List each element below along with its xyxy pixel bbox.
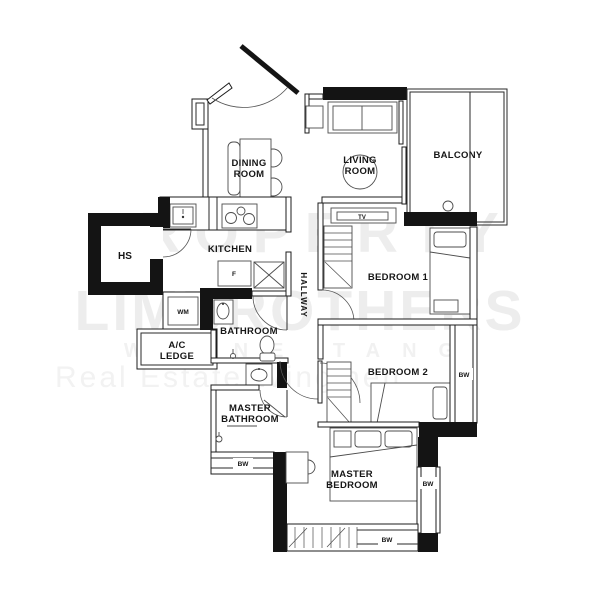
- living-room-zone: LIVING ROOM: [305, 87, 407, 204]
- suite-lobby-zone: [246, 361, 318, 399]
- bathroom-left-wall: [211, 330, 216, 358]
- bathroom-bottom-wall: [211, 358, 288, 363]
- bw-label-master-bottom: BW: [382, 537, 394, 544]
- balcony-slider-panel: [399, 101, 403, 144]
- room-label-dining-line2: ROOM: [234, 169, 265, 180]
- room-label-bedroom1: BEDROOM 1: [368, 272, 429, 283]
- room-label-living-line2: ROOM: [345, 166, 376, 177]
- bedroom2-door-panel: [318, 361, 322, 403]
- hs-door-swing-arc: [163, 229, 191, 257]
- master-pillow: [355, 431, 381, 447]
- room-label-master-bedroom-line2: BEDROOM: [326, 480, 378, 491]
- bedroom1-window-wall: [470, 227, 477, 320]
- bathroom-zone: BATHROOM: [200, 288, 288, 363]
- master-bathroom-left-wall: [211, 390, 216, 453]
- master-vanity-icon: [286, 452, 308, 483]
- bedroom2-zone: BW BEDROOM 2: [327, 325, 477, 424]
- master-bedroom-zone: MASTER BEDROOM BW BW: [286, 422, 477, 552]
- entry-jamb-wall: [207, 83, 232, 104]
- bathroom-top-wall-solid: [200, 288, 252, 299]
- fridge-label: F: [232, 271, 236, 278]
- floorplan-canvas: PROPERTY LIMBROTHERS WAYNE TANG Real Est…: [0, 0, 600, 600]
- room-label-hs: HS: [118, 251, 132, 262]
- room-label-master-bathroom-line1: MASTER: [229, 403, 271, 414]
- master-right-wall-solid: [418, 437, 438, 467]
- bathroom-top-wall: [252, 291, 286, 296]
- bedroom1-bench: [434, 300, 458, 312]
- sofa-icon: [328, 102, 397, 133]
- hallway-right-wall-mid: [318, 325, 323, 359]
- room-label-hallway: HALLWAY: [299, 272, 308, 317]
- dining-left-wall: [203, 129, 208, 198]
- lobby-sink-icon: [246, 364, 272, 385]
- living-bottom-wall: [322, 197, 404, 203]
- master-left-wall-solid: [273, 452, 287, 552]
- room-label-ac-line2: LEDGE: [160, 351, 194, 362]
- room-label-living-line1: LIVING: [343, 155, 376, 166]
- hs-door-opening: [150, 227, 163, 259]
- toilet-tank: [260, 353, 275, 361]
- wm-label: WM: [177, 309, 189, 316]
- kitchen-drain-dot: [182, 216, 184, 218]
- hallway-right-wall-upper: [318, 203, 323, 290]
- bw-label-master-bathroom: BW: [238, 461, 250, 468]
- bathroom-door-swing-arc: [253, 296, 287, 330]
- bedroom2-wardrobe-icon: [327, 362, 351, 424]
- side-table-icon: [306, 106, 323, 128]
- bedroom1-pillow: [434, 232, 466, 247]
- room-label-dining-line1: DINING: [231, 158, 266, 169]
- balcony-bottom-wall-solid: [404, 212, 477, 226]
- room-label-bedroom2: BEDROOM 2: [368, 367, 428, 378]
- balcony-zone: BALCONY: [404, 89, 507, 226]
- bw-label-master-side: BW: [423, 481, 435, 488]
- floorplan-drawing: DINING ROOM KITCHEN F: [0, 0, 600, 600]
- master-window-inner-wall: [417, 467, 421, 533]
- bedroom2-window-inner-wall: [450, 325, 455, 423]
- tv-label: TV: [358, 215, 366, 221]
- dining-room-zone: DINING ROOM: [228, 139, 282, 197]
- bedroom1-door-swing-arc: [322, 290, 354, 322]
- balcony-drain-icon: [443, 201, 453, 211]
- bathroom-left-wall-solid: [200, 299, 213, 330]
- master-top-wall: [318, 422, 419, 427]
- master-corner-wall-solid: [419, 422, 477, 437]
- room-label-master-bathroom-line2: BATHROOM: [221, 414, 279, 425]
- lobby-sink-tap: [258, 368, 260, 370]
- living-top-wall-solid: [323, 87, 407, 100]
- bathroom-sink-tap: [222, 303, 224, 305]
- bw-label-bedroom2: BW: [459, 372, 471, 379]
- bedroom1-wardrobe-icon: [324, 226, 352, 288]
- master-pillow: [385, 431, 412, 447]
- bedroom-divider-wall: [318, 319, 477, 325]
- master-bathroom-top-wall: [211, 385, 259, 390]
- room-label-master-bedroom-line1: MASTER: [331, 469, 373, 480]
- room-label-bathroom: BATHROOM: [220, 326, 278, 337]
- kitchen-zone: KITCHEN F: [158, 197, 291, 296]
- toilet-icon: [260, 336, 274, 354]
- master-bedside-table: [334, 431, 351, 447]
- balcony-slider-panel: [402, 147, 406, 204]
- room-label-ac-line1: A/C: [168, 340, 185, 351]
- master-bottom-corner-solid: [418, 533, 438, 552]
- entry-diagonal-wall: [241, 46, 298, 93]
- master-window-outer-wall: [436, 467, 440, 533]
- master-bathroom-zone: MASTER BATHROOM BW: [211, 385, 287, 552]
- kitchen-right-wall-lower: [286, 252, 291, 296]
- bedroom2-pillow: [433, 387, 447, 419]
- master-vanity-chair: [308, 460, 315, 474]
- lobby-pillar-solid: [277, 362, 287, 388]
- room-label-balcony: BALCONY: [433, 150, 482, 161]
- room-label-kitchen: KITCHEN: [208, 244, 252, 255]
- master-shower-head-icon: [216, 436, 222, 442]
- bedroom2-window-outer-wall: [473, 325, 477, 423]
- kitchen-right-wall-upper: [286, 197, 291, 232]
